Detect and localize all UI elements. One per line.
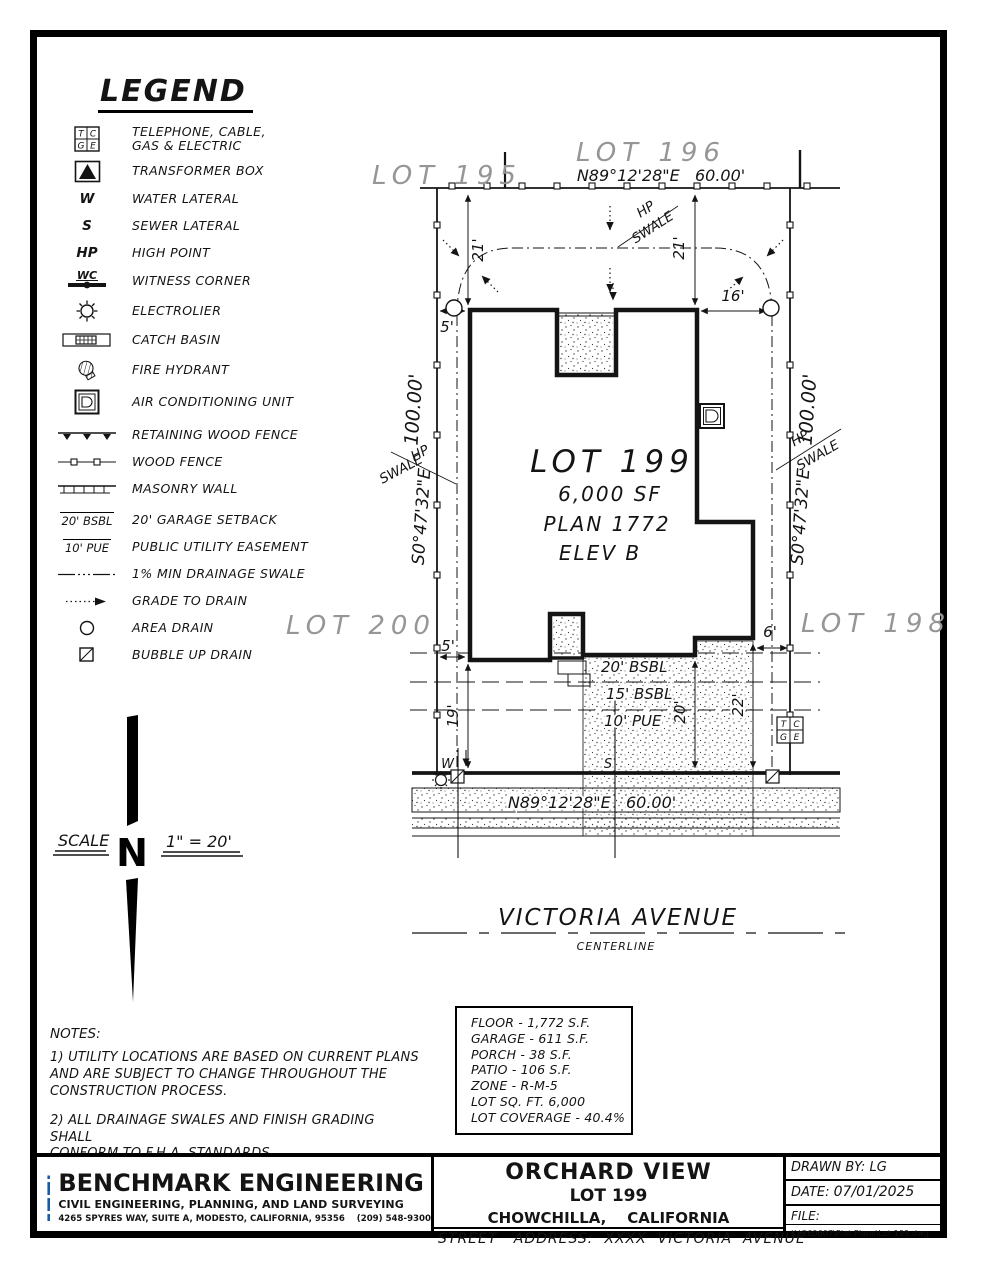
scale-note: SCALE 1" = 20': [53, 831, 243, 856]
elev-label: ELEV B: [559, 541, 641, 565]
date-label: DATE:: [791, 1185, 830, 1200]
lot-stats-box: FLOOR - 1,772 S.F. GARAGE - 611 S.F. POR…: [455, 1006, 633, 1135]
dim-5-top: 5': [440, 318, 454, 336]
svg-text:W: W: [441, 757, 455, 772]
svg-text:S: S: [604, 757, 612, 772]
area-drain-icon: [446, 300, 462, 316]
company-name: BENCHMARK ENGINEERING: [58, 1171, 431, 1195]
note-1: 1) UTILITY LOCATIONS ARE BASED ON CURREN…: [50, 1050, 420, 1101]
left-bearing: S0°47'32"E: [409, 468, 436, 566]
bearing-bottom: N89°12'28"E 60.00': [508, 793, 676, 812]
street-name: VICTORIA AVENUE: [498, 905, 738, 931]
stat-garage: GARAGE - 611 S.F.: [471, 1031, 621, 1047]
svg-text:E: E: [794, 733, 800, 743]
stat-porch: PORCH - 38 S.F.: [471, 1047, 621, 1063]
svg-text:C: C: [793, 720, 800, 730]
date-value: 07/01/2025: [834, 1184, 915, 1200]
notes-title: NOTES:: [50, 1026, 420, 1042]
porch: [553, 617, 580, 655]
ac-unit-icon: [700, 404, 724, 428]
patio: [560, 314, 613, 372]
dim-19: 19': [444, 704, 462, 727]
benchmark-logo: BE: [45, 1165, 50, 1231]
bearing-top: N89°12'28"E 60.00': [577, 166, 745, 185]
lot-200-label: LOT 200: [286, 611, 436, 641]
file-label: FILE:: [791, 1209, 820, 1223]
bsbl-20-label: 20' BSBL: [601, 658, 667, 676]
street-address: STREET ADDRESS: XXXX VICTORIA AVENUE: [434, 1227, 783, 1247]
lot-199-label: LOT 199: [530, 444, 694, 480]
plan-label: PLAN 1772: [543, 512, 670, 536]
lot-area-label: 6,000 SF: [558, 482, 662, 506]
scale-label: SCALE: [58, 831, 110, 850]
date-row: DATE: 07/01/2025: [786, 1181, 940, 1206]
stat-coverage: LOT COVERAGE - 40.4%: [471, 1110, 621, 1126]
file-label-row: FILE:: [786, 1206, 940, 1224]
dim-20: 20': [671, 700, 689, 723]
project-lot: LOT 199: [434, 1186, 783, 1206]
area-drain-icon: [763, 300, 779, 316]
north-arrow: N: [116, 715, 148, 1002]
project-name: ORCHARD VIEW: [434, 1160, 783, 1185]
centerline-label: CENTERLINE: [577, 940, 656, 953]
file-path: K:\260607\Plot Plans\Lot 199.dwg: [791, 1228, 929, 1238]
stat-patio: PATIO - 106 S.F.: [471, 1062, 621, 1078]
title-block-project-section: ORCHARD VIEW LOT 199 CHOWCHILLA, CALIFOR…: [434, 1157, 786, 1238]
tc-ge-box-icon: T C G E: [777, 717, 803, 743]
grade-to-drain-arrows: [443, 206, 783, 300]
drawn-by-row: DRAWN BY: LG: [786, 1157, 940, 1181]
file-path-row: K:\260607\Plot Plans\Lot 199.dwg: [786, 1224, 940, 1238]
stat-lot-sqft: LOT SQ. FT. 6,000: [471, 1094, 621, 1110]
drawn-by-value: LG: [869, 1160, 886, 1175]
company-tagline: CIVIL ENGINEERING, PLANNING, AND LAND SU…: [58, 1198, 431, 1211]
project-city: CHOWCHILLA, CALIFORNIA: [434, 1209, 783, 1227]
street-labels: VICTORIA AVENUE CENTERLINE: [412, 905, 850, 953]
right-distance: 100.00': [795, 373, 822, 446]
dim-6: 6': [763, 623, 777, 641]
title-block-meta-section: DRAWN BY: LG DATE: 07/01/2025 FILE: K:\2…: [786, 1157, 940, 1238]
lot-198-label: LOT 198: [801, 609, 951, 639]
left-distance: 100.00': [401, 373, 428, 446]
title-block: BE BENCHMARK ENGINEERING CIVIL ENGINEERI…: [37, 1153, 940, 1238]
dim-22: 22': [729, 693, 747, 716]
pue-10-label: 10' PUE: [604, 712, 662, 730]
dim-5-bottom: 5': [441, 637, 455, 655]
stat-zone: ZONE - R-M-5: [471, 1078, 621, 1094]
scale-value: 1" = 20': [166, 832, 232, 851]
lot-196-label: LOT 196: [576, 138, 726, 168]
north-letter: N: [116, 831, 148, 875]
dim-21-right: 21': [670, 236, 688, 259]
bsbl-15-label: 15' BSBL: [606, 685, 672, 703]
stat-floor: FLOOR - 1,772 S.F.: [471, 1015, 621, 1031]
plot-plan-sheet: { "legend": { "title": "LEGEND", "items"…: [0, 0, 984, 1275]
dim-16: 16': [721, 287, 744, 305]
title-block-logo-section: BE BENCHMARK ENGINEERING CIVIL ENGINEERI…: [37, 1157, 434, 1238]
porch-steps: [558, 661, 586, 674]
bubble-up-drain-icon: [766, 770, 779, 783]
company-address: 4265 SPYRES WAY, SUITE A, MODESTO, CALIF…: [58, 1214, 431, 1224]
right-bearing: S0°47'32"E: [788, 468, 815, 566]
svg-text:G: G: [780, 733, 787, 743]
drawn-by-label: DRAWN BY:: [791, 1160, 865, 1175]
lot-195-label: LOT 195: [372, 161, 522, 191]
dim-21-left: 21': [469, 238, 487, 261]
